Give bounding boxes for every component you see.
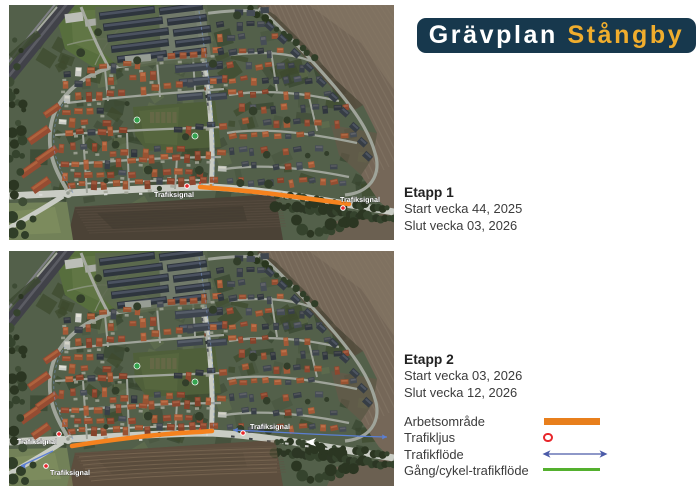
svg-text:Trafiksignal: Trafiksignal bbox=[250, 422, 290, 431]
svg-text:Trafiksignal: Trafiksignal bbox=[50, 468, 90, 477]
svg-text:Trafiksignal: Trafiksignal bbox=[340, 195, 380, 204]
svg-text:Trafiksignal: Trafiksignal bbox=[17, 437, 57, 446]
svg-text:Trafiksignal: Trafiksignal bbox=[154, 190, 194, 199]
